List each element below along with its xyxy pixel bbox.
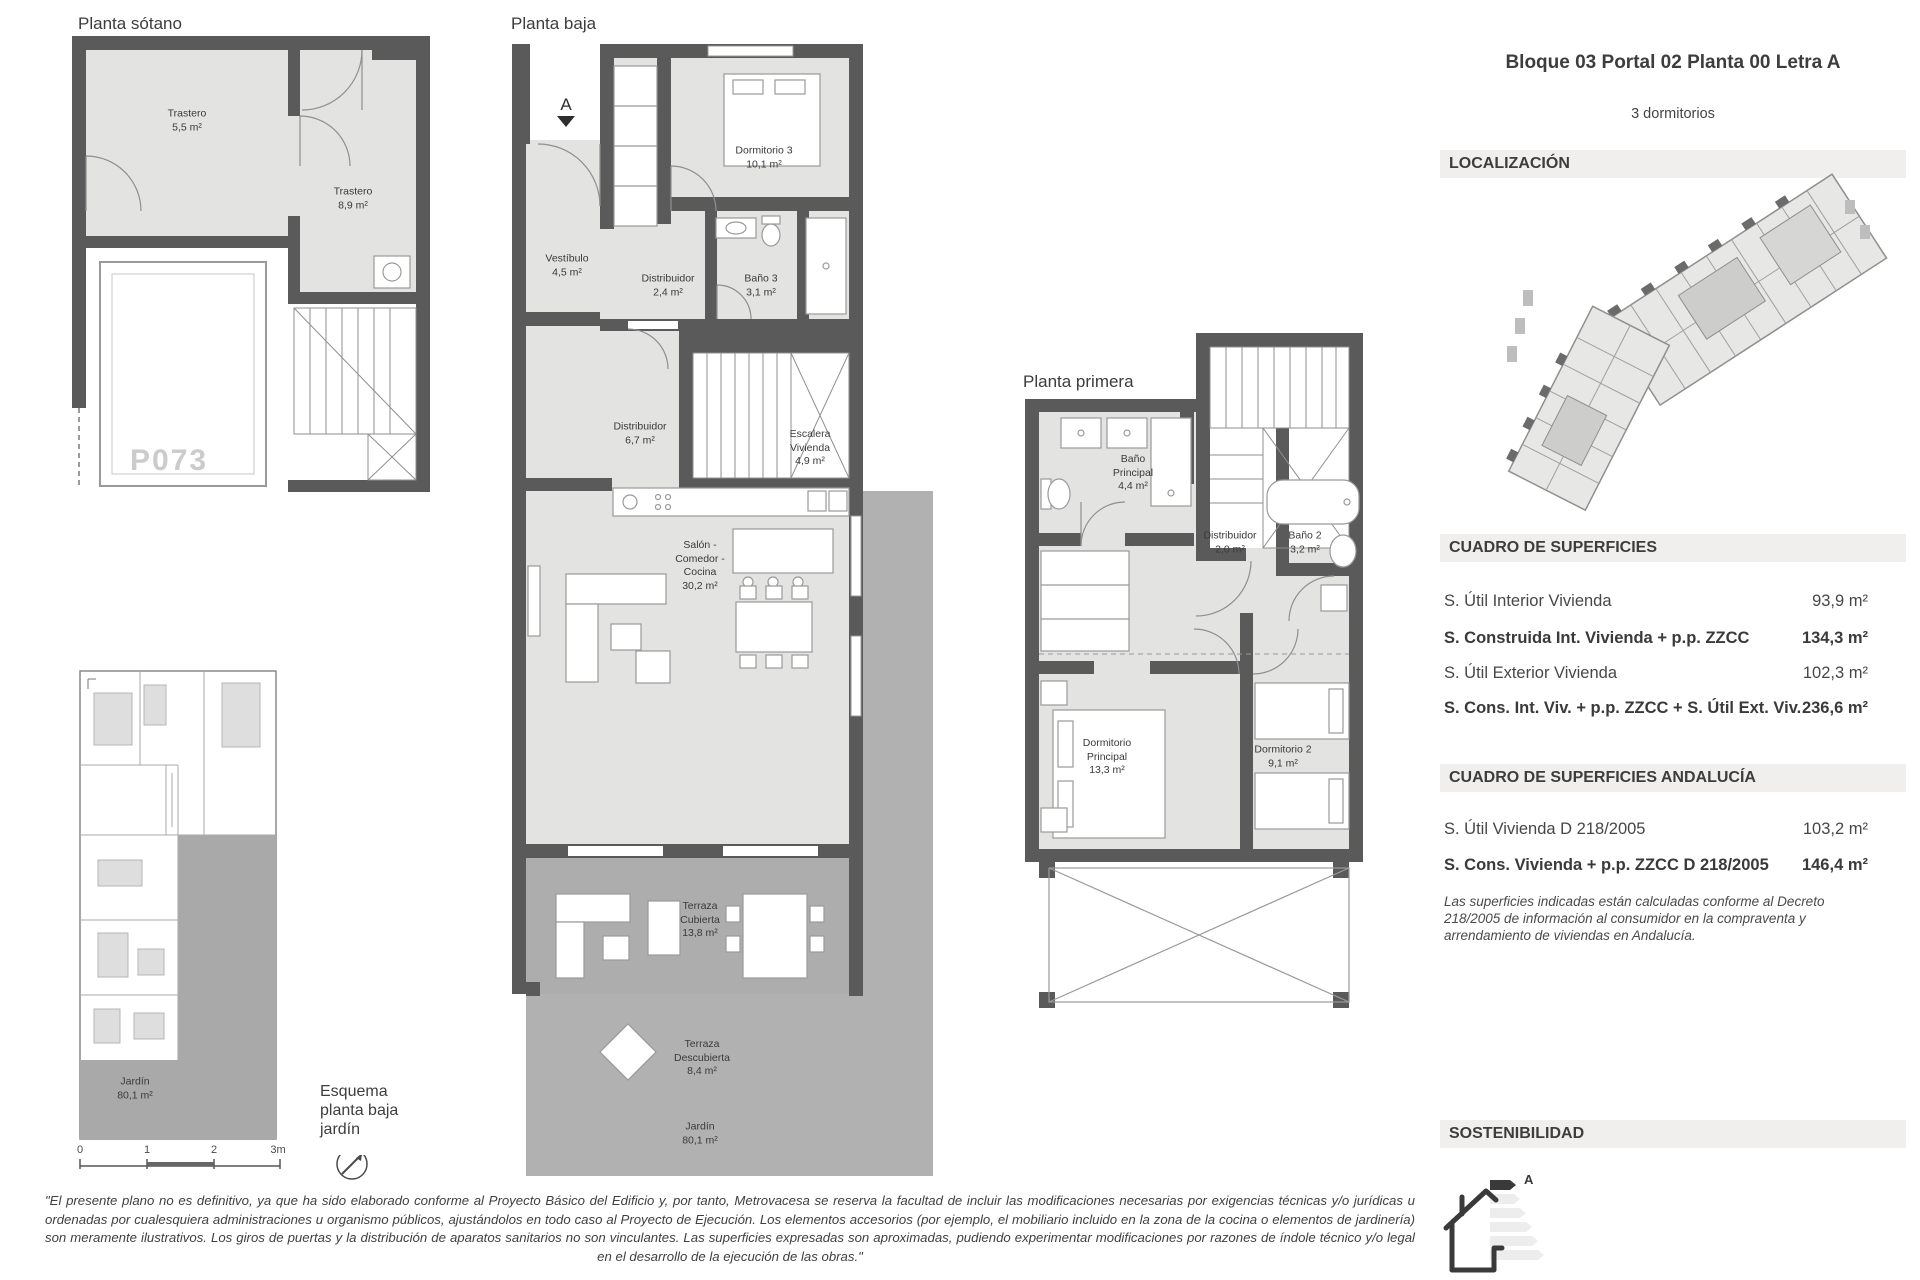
floorplan-sheet: { "header": { "title": "Bloque 03 Portal… — [0, 0, 1920, 1280]
legal-disclaimer: "El presente plano no es definitivo, ya … — [45, 1192, 1415, 1266]
andalucia-row: S. Útil Vivienda D 218/2005103,2 m² — [1444, 812, 1868, 847]
superficies-row: S. Útil Exterior Vivienda102,3 m² — [1444, 656, 1868, 691]
energy-rating-letter: A — [1524, 1172, 1533, 1187]
room-label-trastero-2: Trastero8,9 m² — [334, 186, 373, 213]
schematic-caption: Esquema planta baja jardín — [320, 1082, 424, 1139]
energy-arrow-a — [1490, 1180, 1516, 1190]
plan-title-baja: Planta baja — [511, 14, 596, 34]
room-label-bano-3: Baño 33,1 m² — [744, 273, 777, 300]
floor-plan-baja — [508, 36, 938, 1176]
room-label-distribuidor-67: Distribuidor6,7 m² — [613, 421, 666, 448]
room-label-terraza-cubierta: Terraza Cubierta13,8 m² — [674, 900, 726, 941]
energy-rating-house-icon — [1438, 1166, 1588, 1278]
scale-bar — [70, 1155, 380, 1195]
andalucia-row: S. Cons. Vivienda + p.p. ZZCC D 218/2005… — [1444, 848, 1868, 883]
room-label-distribuidor-20: Distribuidor2,0 m² — [1203, 530, 1256, 557]
superficies-row: S. Útil Interior Vivienda93,9 m² — [1444, 584, 1868, 619]
room-label-escalera: Escalera Vivienda4,9 m² — [783, 428, 837, 469]
location-map — [1495, 170, 1905, 520]
parking-space-code: P073 — [130, 444, 208, 478]
unit-title: Bloque 03 Portal 02 Planta 00 Letra A — [1440, 52, 1906, 74]
superficies-row: S. Construida Int. Vivienda + p.p. ZZCC1… — [1444, 621, 1868, 656]
entrance-letter: A — [557, 95, 575, 115]
room-label-terraza-descubierta: Terraza Descubierta8,4 m² — [666, 1038, 738, 1079]
section-header-sostenibilidad: SOSTENIBILIDAD — [1440, 1120, 1906, 1148]
unit-subtitle: 3 dormitorios — [1440, 106, 1906, 122]
superficies-row: S. Cons. Int. Viv. + p.p. ZZCC + S. Útil… — [1444, 691, 1868, 726]
schematic-jardin-label: Jardín80,1 m² — [117, 1076, 153, 1103]
section-header-superficies: CUADRO DE SUPERFICIES — [1440, 534, 1906, 562]
room-label-dormitorio-2: Dormitorio 29,1 m² — [1254, 744, 1311, 771]
room-label-jardin: Jardín80,1 m² — [682, 1121, 718, 1148]
room-label-bano-2: Baño 23,2 m² — [1288, 530, 1321, 557]
room-label-trastero-1: Trastero5,5 m² — [168, 108, 207, 135]
floor-plan-sotano — [72, 36, 444, 494]
room-label-salon: Salón - Comedor - Cocina30,2 m² — [670, 539, 730, 593]
plan-title-sotano: Planta sótano — [78, 14, 182, 34]
room-label-distribuidor-24: Distribuidor2,4 m² — [641, 273, 694, 300]
room-label-dormitorio-principal: Dormitorio Principal13,3 m² — [1075, 737, 1139, 778]
andalucia-note: Las superficies indicadas están calculad… — [1444, 893, 1844, 944]
section-header-andalucia: CUADRO DE SUPERFICIES ANDALUCÍA — [1440, 764, 1906, 792]
north-compass-icon — [337, 1155, 367, 1179]
floor-plan-primera — [1025, 333, 1377, 1023]
entrance-arrow-icon — [557, 116, 575, 127]
entrance-marker: A — [557, 95, 575, 127]
garden-schematic — [74, 665, 286, 1157]
room-label-vestibulo: Vestíbulo4,5 m² — [545, 253, 588, 280]
room-label-bano-principal: Baño Principal4,4 m² — [1106, 453, 1160, 494]
room-label-dormitorio-3: Dormitorio 310,1 m² — [735, 145, 792, 172]
